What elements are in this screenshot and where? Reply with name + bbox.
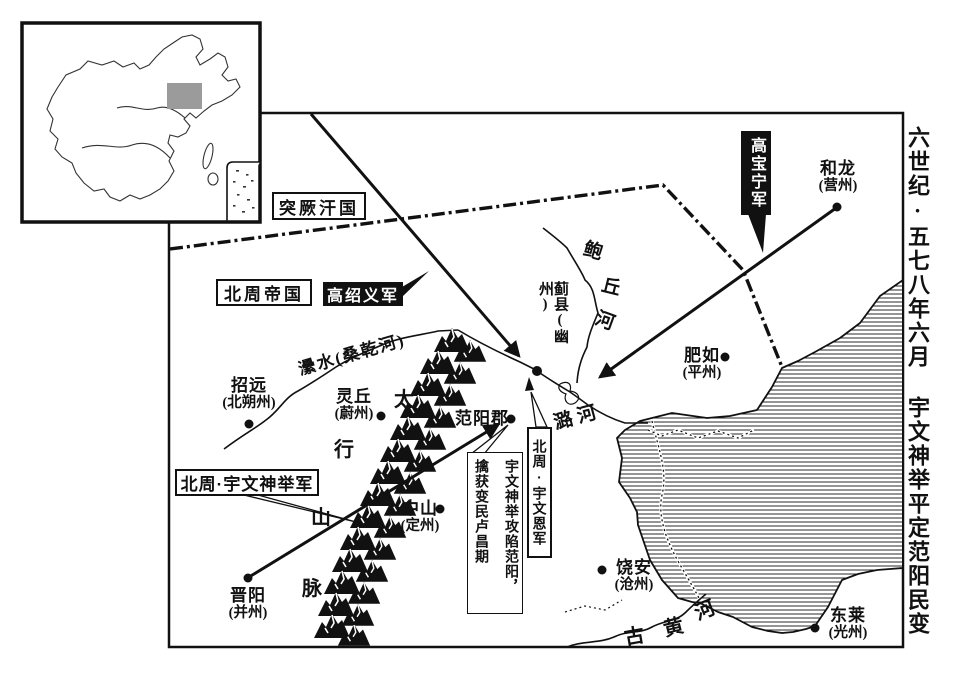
region-label-northern-zhou: 北周帝国: [216, 279, 312, 306]
title-event: 宇文神举平定范阳民变: [905, 396, 930, 636]
city-label-donglai: 东莱 (光州): [824, 606, 872, 641]
army-label-yuwen-en: 北周·宇文恩军: [527, 427, 552, 558]
region-label-turkic-khaganate: 突厥汗国: [272, 192, 366, 220]
yuwen-en-callout-tail: [531, 392, 547, 427]
city-label-zhaoyuan: 招远 (北朔州): [203, 376, 295, 411]
city-dot-raoan: [598, 566, 607, 575]
mountain-label-taihang-2: 行: [334, 433, 354, 462]
mountain-label-taihang-3: 山: [311, 501, 331, 530]
army-label-gao-baoning: 高宝宁军: [741, 131, 771, 215]
gao-shaoyi-callout-tail: [402, 271, 429, 297]
taihang-mountain-range: [314, 328, 486, 646]
city-label-jinyang: 晋阳 (并州): [221, 586, 275, 621]
mountain-label-taihang-1: 太: [394, 383, 414, 412]
china-locator-inset: [22, 23, 260, 222]
city-dot-donglai: [811, 624, 820, 633]
gao-shaoyi-arrow: [311, 114, 519, 356]
city-label-feiru: 肥如 (平州): [672, 346, 732, 381]
yuwen-shenju-callout-tail: [244, 495, 356, 522]
city-dot-zhaoyuan: [245, 420, 254, 429]
inset-highlight-region: [167, 83, 202, 109]
title-era: 六世纪·五七八年六月: [905, 126, 930, 369]
annotation-line-1: 宇文神举攻陷范阳，: [503, 459, 517, 594]
city-label-helong: 和龙 (营州): [800, 159, 876, 194]
city-label-zhongshan: 中山 (定州): [400, 499, 440, 534]
city-dot-helong: [833, 203, 842, 212]
gao-baoning-callout-tail: [748, 214, 766, 253]
mountain-label-taihang-4: 脉: [302, 572, 322, 601]
city-dot-jinyang: [244, 574, 253, 583]
city-label-jixian: 蓟县(幽州): [537, 281, 567, 373]
yuwen-en-arrowhead: [525, 377, 534, 391]
army-label-yuwen-shenju: 北周·宇文神举军: [175, 469, 319, 496]
annotation-line-2: 擒获变民卢昌期: [473, 459, 487, 564]
city-label-raoan: 饶安 (沧州): [610, 558, 658, 593]
city-label-lingqiu: 灵丘 (蔚州): [328, 387, 380, 422]
page-title: 六世纪·五七八年六月 宇文神举平定范阳民变: [906, 126, 928, 652]
city-label-fanyang: 范阳郡: [455, 409, 509, 428]
annotation-note: 宇文神举攻陷范阳， 擒获变民卢昌期: [467, 452, 523, 614]
army-label-gao-shaoyi: 高绍义军: [323, 282, 403, 306]
map-page: 六世纪·五七八年六月 宇文神举平定范阳民变 突厥汗国 北周帝国 高绍义军 高宝宁…: [0, 0, 955, 675]
